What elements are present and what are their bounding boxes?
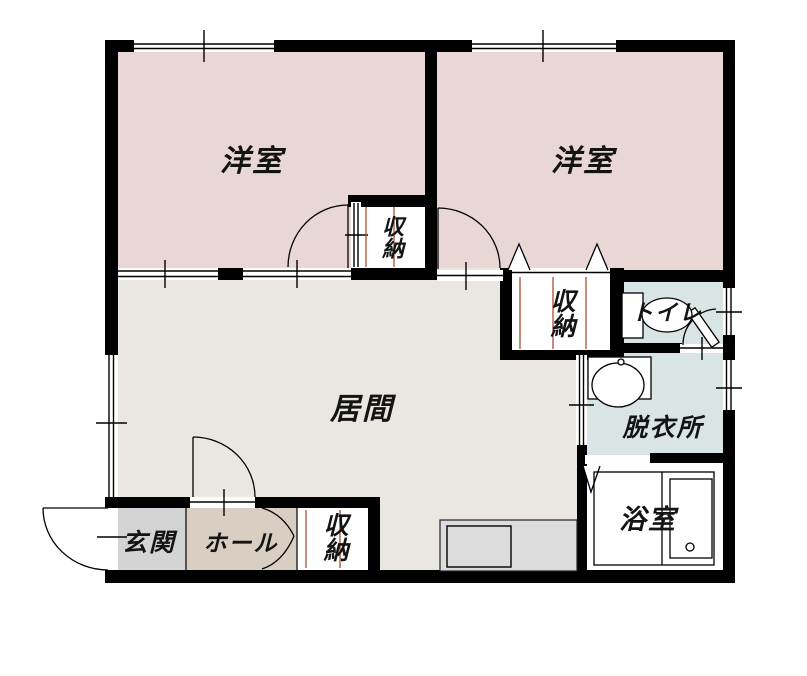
room-label-hall: ホール (204, 524, 279, 558)
room-label-bath: 浴室 (619, 498, 677, 537)
washbasin-fixture (588, 357, 651, 407)
floor-plan: 洋室 洋室 居間 収納 収納 収納 トイレ 脱衣所 浴室 玄関 ホール (0, 0, 807, 676)
room-label-closet1: 収納 (375, 215, 407, 259)
kitchen-counter (440, 520, 577, 571)
room-label-bedroom2: 洋室 (551, 136, 615, 180)
room-label-dressing: 脱衣所 (622, 408, 703, 444)
room-label-entrance: 玄関 (122, 523, 176, 559)
threshold-opening (585, 455, 650, 464)
room-label-hall-closet: 収納 (316, 512, 352, 562)
door-arc (43, 508, 108, 570)
floor-plan-drawing (0, 0, 807, 676)
room-label-closet2: 収納 (543, 288, 579, 338)
room-label-bedroom1: 洋室 (220, 136, 284, 180)
room-label-toilet: トイレ (631, 295, 703, 327)
room-label-living: 居間 (330, 384, 394, 428)
kitchen-sink (447, 526, 511, 567)
